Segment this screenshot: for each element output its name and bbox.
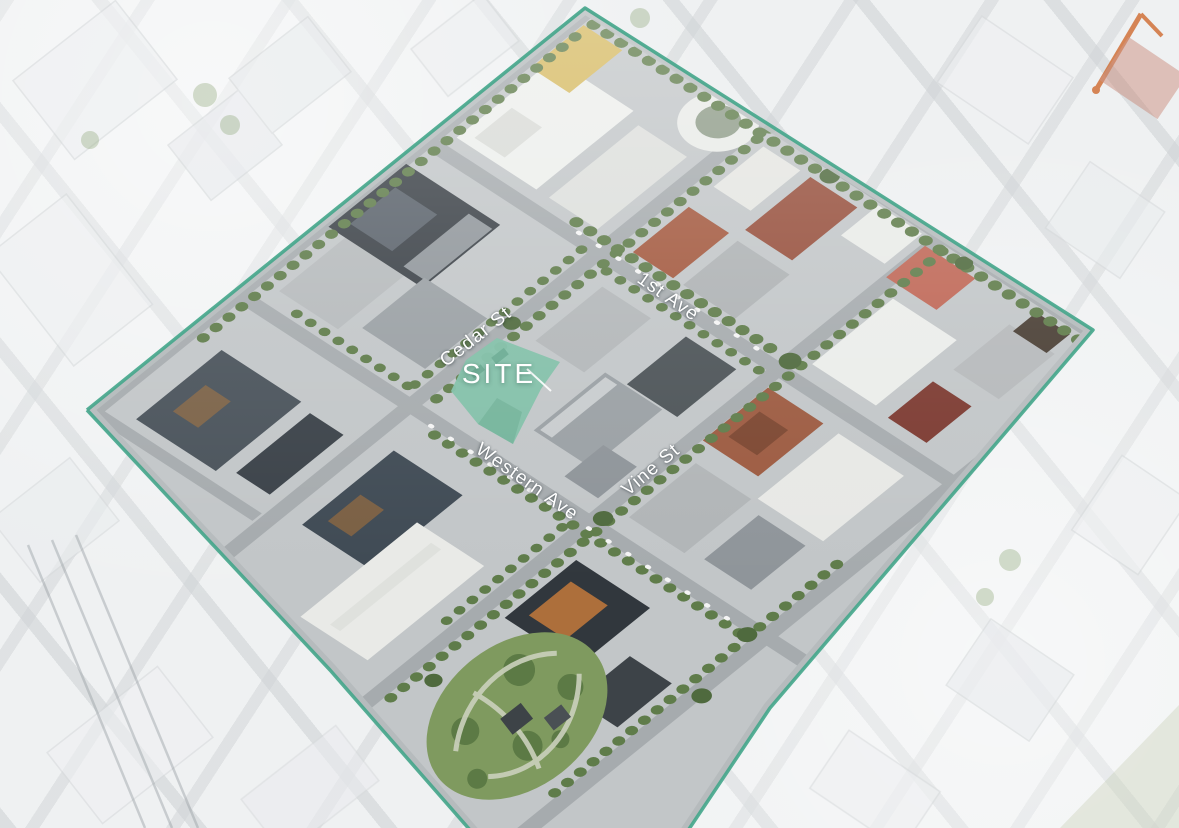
site-label: SITE [462,360,536,388]
map-graphics [0,0,1179,828]
construction-crane [1092,14,1179,119]
aerial-site-map: Cedar St 1st Ave Western Ave Vine St SIT… [0,0,1179,828]
